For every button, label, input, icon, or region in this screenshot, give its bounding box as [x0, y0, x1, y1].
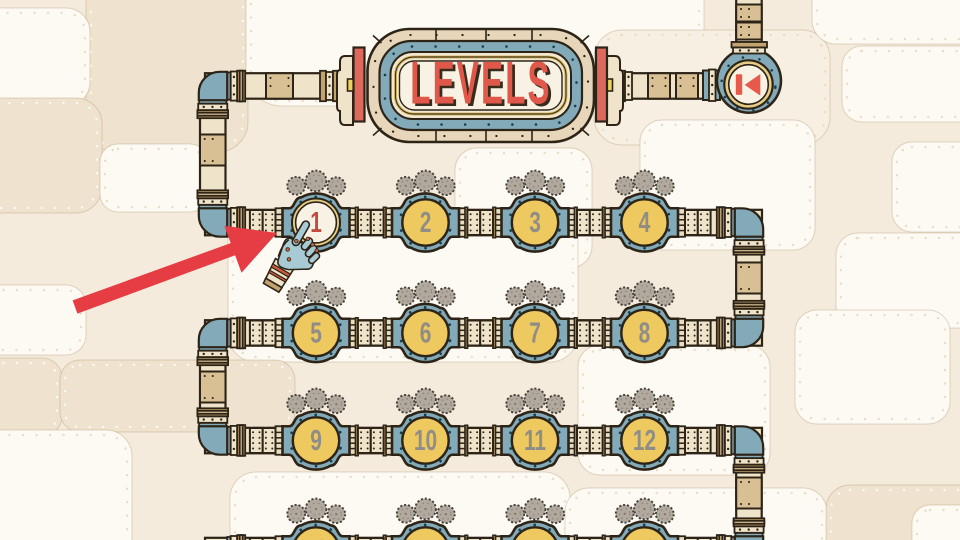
svg-text:16: 16 — [633, 535, 656, 540]
svg-text:5: 5 — [310, 317, 322, 349]
svg-text:4: 4 — [639, 207, 651, 239]
svg-text:13: 13 — [304, 535, 327, 540]
svg-text:8: 8 — [639, 317, 651, 349]
svg-text:9: 9 — [310, 425, 322, 457]
svg-text:11: 11 — [524, 425, 546, 457]
svg-text:12: 12 — [633, 425, 656, 457]
svg-text:15: 15 — [523, 535, 546, 540]
svg-text:14: 14 — [414, 535, 437, 540]
svg-text:7: 7 — [529, 317, 541, 349]
svg-text:10: 10 — [414, 425, 437, 457]
svg-text:LEVELS: LEVELS — [410, 50, 552, 117]
svg-text:3: 3 — [529, 207, 541, 239]
svg-text:2: 2 — [420, 207, 432, 239]
svg-text:6: 6 — [420, 317, 432, 349]
svg-text:1: 1 — [310, 207, 322, 239]
